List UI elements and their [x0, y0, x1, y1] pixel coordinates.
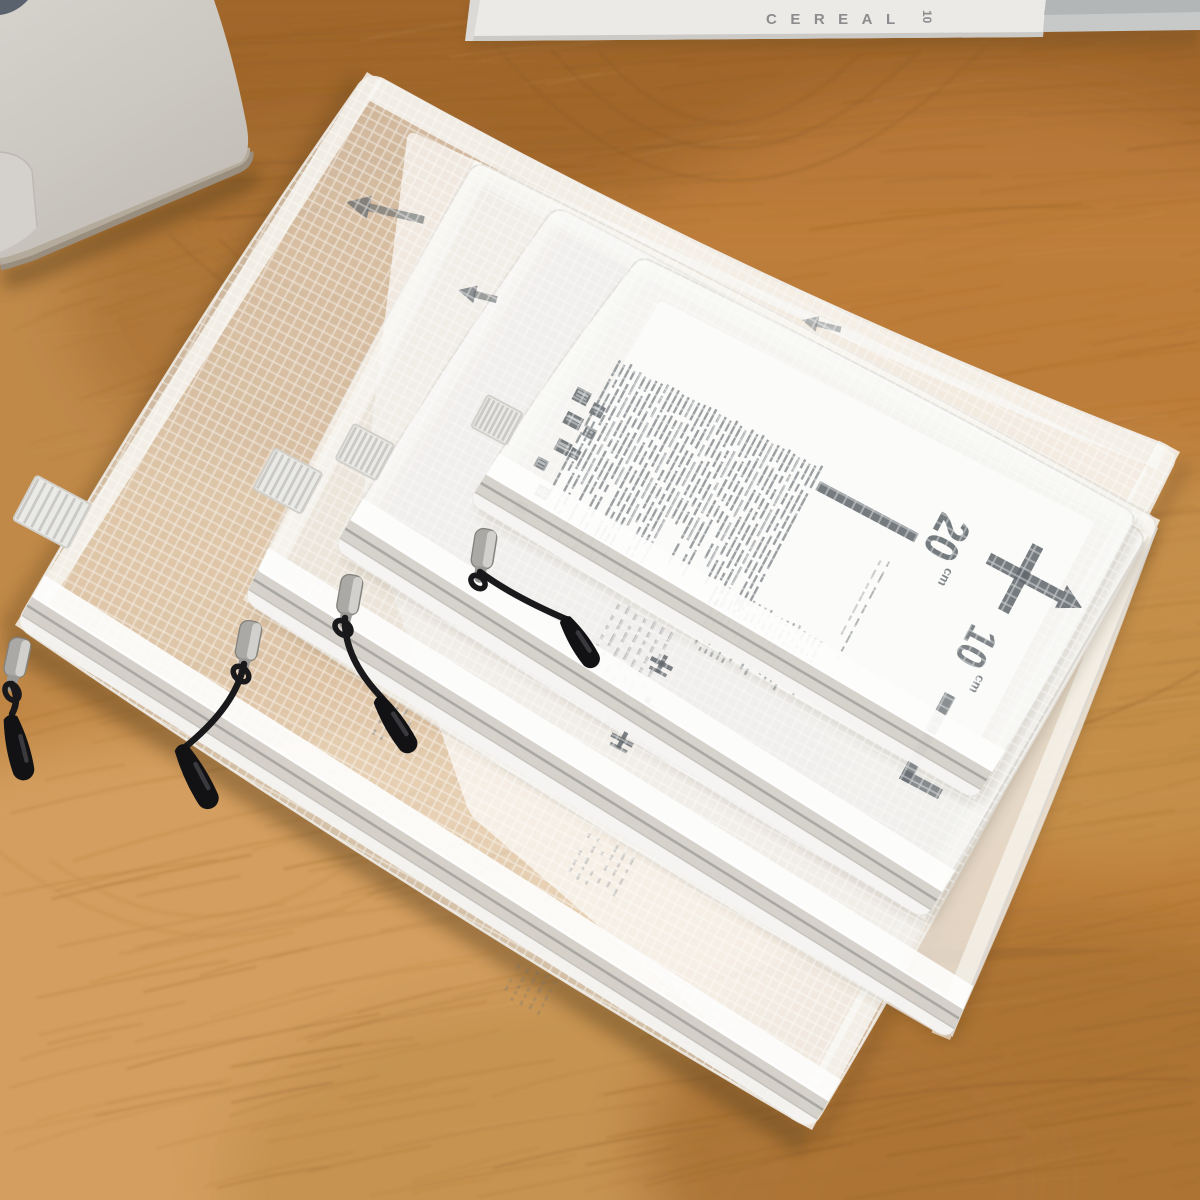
svg-text:CEREAL: CEREAL — [766, 11, 909, 28]
svg-text:10: 10 — [920, 10, 934, 24]
